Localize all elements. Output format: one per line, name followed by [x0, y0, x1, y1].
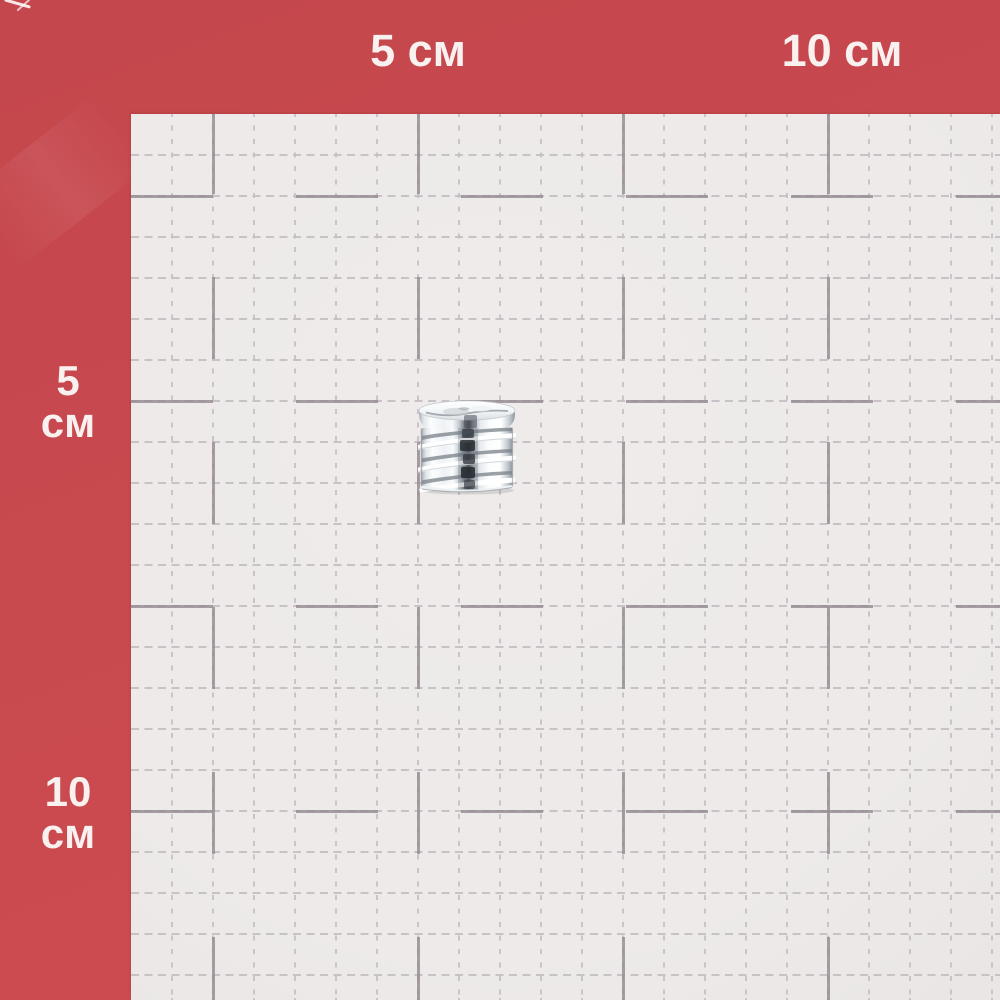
measuring-grid-board — [131, 114, 1000, 1000]
grid-line — [131, 728, 1000, 730]
grid-line — [131, 646, 1000, 648]
grid-line — [253, 114, 255, 1000]
scale-label-top-10cm: 10 см — [762, 26, 922, 76]
scale-label-top-5cm: 5 см — [338, 26, 498, 76]
grid-line — [335, 114, 337, 1000]
grid-5cm-line — [131, 810, 1000, 813]
grid-line — [950, 114, 952, 1000]
threaded-insert-photo — [418, 399, 516, 495]
grid-line — [131, 482, 1000, 484]
grid-line — [663, 114, 665, 1000]
grid-line — [704, 114, 706, 1000]
grid-line — [131, 359, 1000, 361]
grid-5cm-line — [131, 195, 1000, 198]
grid-5cm-line — [212, 114, 215, 1000]
grid-line — [868, 114, 870, 1000]
scale-label-unit: см — [8, 813, 128, 855]
insert-dark-reflection — [464, 480, 475, 489]
grid-line — [786, 114, 788, 1000]
grid-line — [131, 236, 1000, 238]
grid-5cm-line — [622, 114, 625, 1000]
grid-line — [131, 933, 1000, 935]
grid-line — [294, 114, 296, 1000]
grid-line — [131, 769, 1000, 771]
grid-line — [131, 318, 1000, 320]
grid-line — [540, 114, 542, 1000]
grid-5cm-line — [827, 114, 830, 1000]
grid-line — [131, 851, 1000, 853]
grid-line — [131, 277, 1000, 279]
grid-line — [745, 114, 747, 1000]
grid-line — [131, 687, 1000, 689]
insert-dark-reflection — [461, 467, 475, 478]
scale-label-value: 10 — [8, 771, 128, 813]
grid-line — [171, 114, 173, 1000]
grid-line — [581, 114, 583, 1000]
grid-5cm-line — [417, 114, 420, 1000]
grid-line — [909, 114, 911, 1000]
product-photo: 5 см 10 см 5 см 10 см — [0, 0, 1000, 1000]
grid-line — [131, 523, 1000, 525]
grid-line — [131, 154, 1000, 156]
grid-line — [131, 974, 1000, 976]
scale-label-value: 5 — [8, 360, 128, 402]
grid-5cm-line — [131, 605, 1000, 608]
grid-line — [991, 114, 993, 1000]
scale-label-left-5cm: 5 см — [8, 360, 128, 444]
grid-5cm-line — [131, 400, 1000, 403]
insert-dark-reflection — [460, 440, 475, 451]
insert-dark-reflection — [464, 415, 477, 428]
scale-label-left-10cm: 10 см — [8, 771, 128, 855]
grid-line — [131, 441, 1000, 443]
insert-dark-reflection — [462, 429, 474, 438]
grid-line — [131, 892, 1000, 894]
scale-label-unit: см — [8, 402, 128, 444]
grid-line — [131, 564, 1000, 566]
grid-line — [499, 114, 501, 1000]
grid-line — [376, 114, 378, 1000]
insert-dark-reflection — [463, 454, 475, 464]
grid-line — [458, 114, 460, 1000]
insert-top-reflection — [471, 406, 491, 412]
